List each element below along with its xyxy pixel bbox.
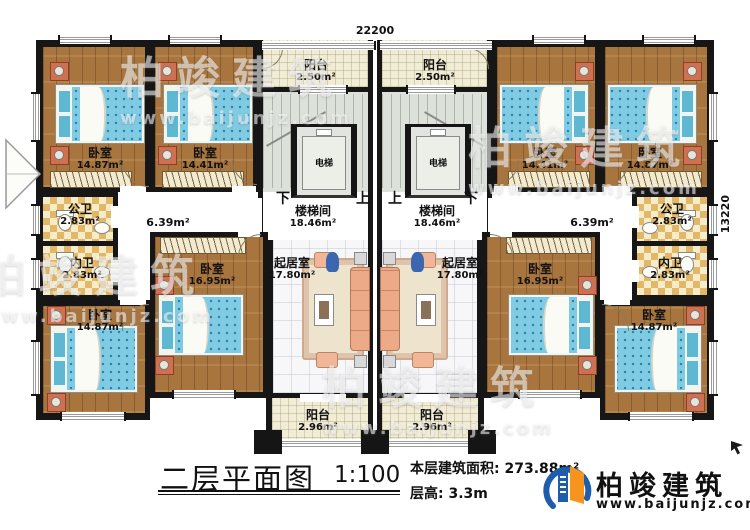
- door-opening: [120, 186, 146, 193]
- bed: [158, 294, 244, 356]
- nightstand: [158, 146, 177, 165]
- brand-logo-icon: [543, 460, 593, 516]
- side-table: [383, 252, 396, 265]
- window: [709, 258, 718, 290]
- bed: [499, 84, 589, 144]
- room-label: 卧室 14.41m²: [182, 146, 228, 172]
- window: [709, 340, 718, 396]
- nightstand: [686, 306, 705, 325]
- dimension-top: 22200: [0, 24, 750, 37]
- room-label: 起居室 17.80m²: [437, 256, 483, 282]
- room-label: 阳台 2.96m²: [412, 408, 451, 434]
- bed: [614, 325, 702, 393]
- brand-url: www.baijunjz.com: [596, 497, 750, 512]
- nightstand: [158, 62, 177, 81]
- elevator-left: 电梯: [291, 124, 357, 198]
- nightstand: [47, 393, 66, 412]
- room-label: 卧室 14.41m²: [522, 146, 568, 172]
- door-opening: [404, 394, 450, 402]
- closet: [506, 237, 592, 254]
- window: [298, 85, 348, 94]
- floor-plan-sheet: 电梯 电梯 下 上 上 下: [0, 0, 750, 530]
- closet: [508, 171, 590, 188]
- stair-down-label: 下: [276, 188, 290, 208]
- mouse-cursor: [730, 440, 746, 456]
- nightstand: [683, 146, 702, 165]
- door-opening: [111, 206, 120, 228]
- bed: [55, 84, 145, 144]
- window: [31, 204, 40, 236]
- floor-height-value: 3.3m: [448, 486, 487, 502]
- person-figure: [411, 252, 424, 272]
- nightstand: [578, 276, 597, 295]
- title-underline: [158, 490, 400, 492]
- floor-height-row: 层高: 3.3m: [410, 483, 488, 503]
- door-opening: [254, 198, 262, 232]
- stair-up-label: 上: [356, 188, 370, 208]
- pillar: [361, 430, 389, 454]
- side-table: [354, 252, 367, 265]
- dimension-right: 13220: [719, 195, 732, 233]
- armchair: [412, 352, 434, 368]
- balcony-railing: [378, 41, 494, 50]
- closet: [160, 237, 246, 254]
- elevator-label: 电梯: [411, 156, 465, 169]
- room-label: 阳台 2.50m²: [296, 58, 335, 84]
- sofa: [380, 267, 400, 351]
- armchair: [316, 352, 338, 368]
- nightstand: [686, 393, 705, 412]
- door-opening: [630, 206, 639, 228]
- room-label: 楼梯间 18.46m²: [414, 204, 460, 230]
- window: [31, 92, 40, 142]
- side-table: [354, 355, 367, 368]
- door-opening: [300, 394, 346, 402]
- bed: [508, 294, 594, 356]
- room-label: 卧室 16.95m²: [517, 262, 563, 288]
- pillar: [254, 430, 282, 454]
- nightstand: [50, 62, 69, 81]
- balcony-railing: [268, 439, 376, 448]
- room-label: 卧室 16.95m²: [189, 262, 235, 288]
- sofa: [350, 267, 370, 351]
- nightstand: [578, 356, 597, 375]
- window: [31, 340, 40, 396]
- elevator-right: 电梯: [405, 124, 471, 198]
- door-opening: [604, 186, 630, 193]
- nightstand: [575, 146, 594, 165]
- window: [518, 390, 582, 399]
- coffee-table: [314, 294, 334, 326]
- room-label: 卧室 14.87m²: [77, 308, 123, 334]
- window: [628, 412, 694, 421]
- window: [709, 204, 718, 236]
- elevator-door: [430, 129, 446, 136]
- coffee-table: [416, 294, 436, 326]
- corridor-area-label: 6.39m²: [570, 216, 613, 229]
- room-label: 内卫 2.83m²: [62, 256, 101, 282]
- room-label: 公卫 2.83m²: [60, 202, 99, 228]
- floor-area-label: 本层建筑面积:: [410, 461, 500, 477]
- sheet-scale: 1:100: [334, 462, 400, 488]
- room-label: 起居室 17.80m²: [269, 256, 315, 282]
- window: [709, 92, 718, 142]
- door-opening: [630, 260, 639, 282]
- porch-roof: [4, 138, 44, 210]
- closet: [620, 171, 702, 188]
- room-label: 楼梯间 18.46m²: [290, 204, 336, 230]
- balcony-railing: [260, 41, 376, 50]
- nightstand: [575, 62, 594, 81]
- room-label: 卧室 14.87m²: [77, 146, 123, 172]
- side-table: [383, 355, 396, 368]
- elevator-door: [316, 129, 332, 136]
- title-underline: [158, 494, 400, 495]
- window: [60, 412, 126, 421]
- floor-height-label: 层高:: [410, 486, 444, 502]
- nightstand: [155, 356, 174, 375]
- nightstand: [50, 146, 69, 165]
- room-label: 阳台 2.96m²: [298, 408, 337, 434]
- room-label: 内卫 2.83m²: [650, 256, 689, 282]
- nightstand: [47, 306, 66, 325]
- window: [31, 258, 40, 290]
- window: [172, 390, 236, 399]
- elevator-label: 电梯: [297, 156, 351, 169]
- stair-up-label: 上: [388, 188, 402, 208]
- room-label: 阳台 2.50m²: [415, 58, 454, 84]
- corridor-area-label: 6.39m²: [146, 216, 189, 229]
- door-opening: [111, 260, 120, 282]
- pillar: [468, 430, 496, 454]
- window: [406, 85, 456, 94]
- bed: [50, 325, 138, 393]
- room-label: 公卫 2.83m²: [652, 202, 691, 228]
- bed: [607, 84, 697, 144]
- bed: [163, 84, 253, 144]
- nightstand: [155, 276, 174, 295]
- door-opening: [494, 186, 518, 193]
- room-label: 卧室 14.87m²: [631, 308, 677, 334]
- stair-down-label: 下: [464, 188, 478, 208]
- nightstand: [683, 62, 702, 81]
- door-opening: [488, 198, 496, 232]
- door-opening: [232, 186, 256, 193]
- person-figure: [326, 252, 339, 272]
- room-label: 卧室 14.87m²: [627, 146, 673, 172]
